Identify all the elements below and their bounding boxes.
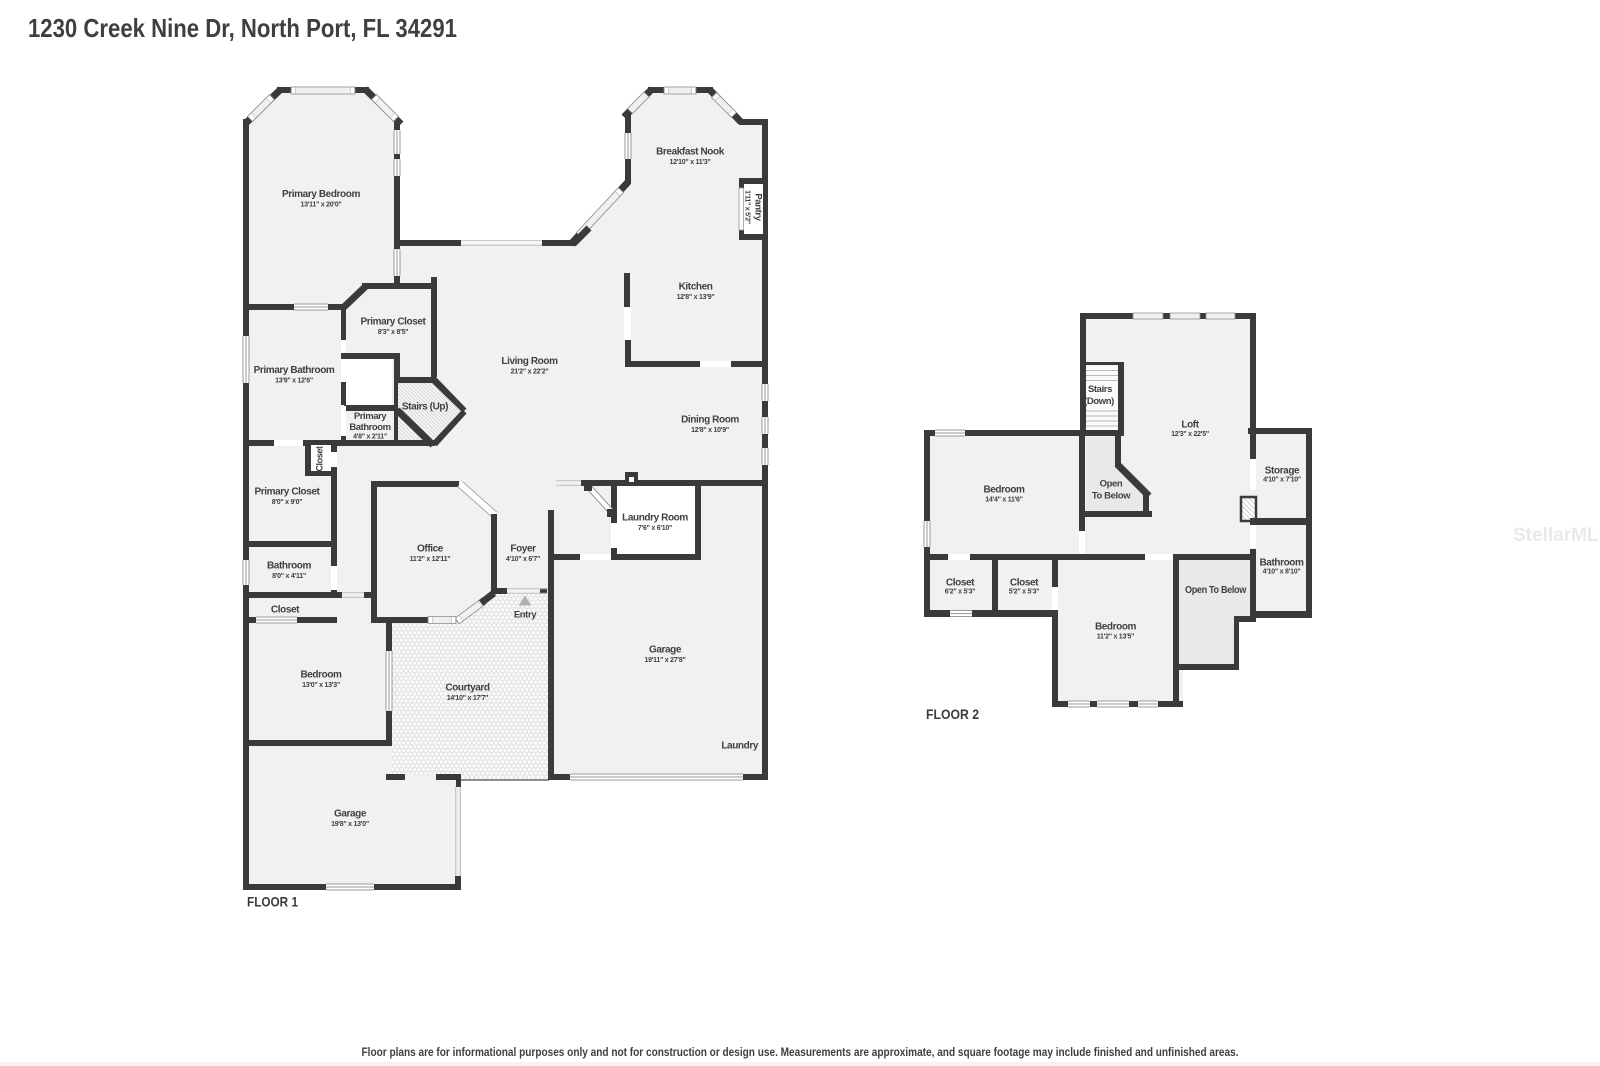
svg-text:Primary Bedroom: Primary Bedroom	[282, 189, 360, 200]
svg-text:Primary Bathroom: Primary Bathroom	[254, 365, 335, 376]
svg-text:Closet: Closet	[271, 605, 300, 616]
svg-text:StellarMLS: StellarMLS	[1513, 525, 1600, 546]
svg-text:FLOOR 2: FLOOR 2	[926, 706, 979, 722]
svg-text:4'8" x 2'11": 4'8" x 2'11"	[353, 434, 387, 441]
svg-text:14'4" x 11'6": 14'4" x 11'6"	[985, 497, 1022, 504]
svg-text:Open: Open	[1100, 479, 1123, 490]
svg-text:Bathroom: Bathroom	[349, 422, 390, 433]
svg-text:7'6" x 6'10": 7'6" x 6'10"	[638, 525, 672, 532]
svg-text:Pantry: Pantry	[753, 193, 764, 221]
svg-text:1'11" x 5'2": 1'11" x 5'2"	[744, 190, 751, 224]
svg-text:Closet: Closet	[1010, 578, 1039, 589]
svg-text:Closet: Closet	[946, 578, 975, 589]
svg-text:Closet: Closet	[315, 446, 325, 472]
svg-text:Garage: Garage	[649, 645, 682, 656]
svg-text:Open To Below: Open To Below	[1185, 584, 1247, 596]
svg-text:8'3" x 8'5": 8'3" x 8'5"	[378, 329, 409, 336]
svg-text:Foyer: Foyer	[510, 544, 536, 555]
svg-text:Stairs: Stairs	[1088, 384, 1112, 395]
svg-text:11'2" x 13'5": 11'2" x 13'5"	[1097, 634, 1134, 641]
svg-text:8'0" x 4'11": 8'0" x 4'11"	[272, 573, 306, 580]
svg-text:Loft: Loft	[1181, 420, 1199, 431]
svg-text:1230 Creek Nine Dr, North Port: 1230 Creek Nine Dr, North Port, FL 34291	[28, 13, 457, 43]
svg-text:Primary: Primary	[354, 411, 387, 422]
svg-text:FLOOR 1: FLOOR 1	[247, 894, 298, 910]
svg-text:6'2" x 5'3": 6'2" x 5'3"	[945, 589, 976, 596]
svg-text:12'3" x 22'5": 12'3" x 22'5"	[1171, 431, 1209, 438]
svg-text:Entry: Entry	[514, 610, 537, 621]
svg-text:Laundry: Laundry	[721, 741, 758, 752]
svg-text:Courtyard: Courtyard	[445, 683, 489, 694]
svg-text:4'10" x 6'7": 4'10" x 6'7"	[506, 556, 540, 563]
svg-text:Laundry Room: Laundry Room	[622, 513, 688, 524]
svg-text:Bedroom: Bedroom	[983, 485, 1025, 496]
svg-text:5'2" x 5'3": 5'2" x 5'3"	[1009, 589, 1040, 596]
svg-text:4'10" x 7'10": 4'10" x 7'10"	[1263, 477, 1301, 484]
svg-text:Bedroom: Bedroom	[300, 670, 342, 681]
svg-text:13'0" x 13'3": 13'0" x 13'3"	[302, 682, 340, 689]
svg-text:12'8" x 13'9": 12'8" x 13'9"	[677, 294, 715, 301]
svg-text:19'11" x 27'8": 19'11" x 27'8"	[644, 657, 685, 664]
svg-text:13'9" x 12'6": 13'9" x 12'6"	[275, 378, 313, 385]
svg-text:Storage: Storage	[1265, 466, 1300, 477]
svg-text:13'11" x 20'0": 13'11" x 20'0"	[300, 202, 341, 209]
svg-text:Bedroom: Bedroom	[1095, 622, 1137, 633]
svg-text:Primary Closet: Primary Closet	[361, 317, 427, 328]
svg-text:Floor plans are for informatio: Floor plans are for informational purpos…	[362, 1047, 1239, 1059]
svg-text:Kitchen: Kitchen	[679, 282, 713, 293]
svg-text:14'10" x 17'7": 14'10" x 17'7"	[447, 695, 489, 702]
svg-text:To Below: To Below	[1092, 491, 1131, 502]
svg-text:11'2" x 12'11": 11'2" x 12'11"	[410, 556, 451, 563]
svg-text:8'0" x 9'0": 8'0" x 9'0"	[272, 499, 303, 506]
svg-text:Stairs (Up): Stairs (Up)	[402, 402, 448, 413]
svg-text:Dining Room: Dining Room	[681, 415, 739, 426]
svg-text:Breakfast Nook: Breakfast Nook	[656, 147, 725, 158]
svg-text:4'10" x 8'10": 4'10" x 8'10"	[1263, 569, 1301, 576]
svg-text:(Down): (Down)	[1084, 396, 1114, 407]
svg-text:Office: Office	[417, 544, 444, 555]
svg-text:Living Room: Living Room	[501, 356, 558, 367]
svg-text:12'10" x 11'3": 12'10" x 11'3"	[669, 159, 710, 166]
svg-text:Bathroom: Bathroom	[1259, 558, 1304, 569]
svg-text:Primary Closet: Primary Closet	[255, 487, 321, 498]
svg-text:Garage: Garage	[334, 809, 367, 820]
svg-text:21'2" x 22'2": 21'2" x 22'2"	[511, 369, 549, 376]
svg-text:Bathroom: Bathroom	[267, 561, 312, 572]
svg-text:19'8" x 13'0": 19'8" x 13'0"	[331, 821, 369, 828]
svg-text:12'8" x 10'9": 12'8" x 10'9"	[691, 427, 729, 434]
